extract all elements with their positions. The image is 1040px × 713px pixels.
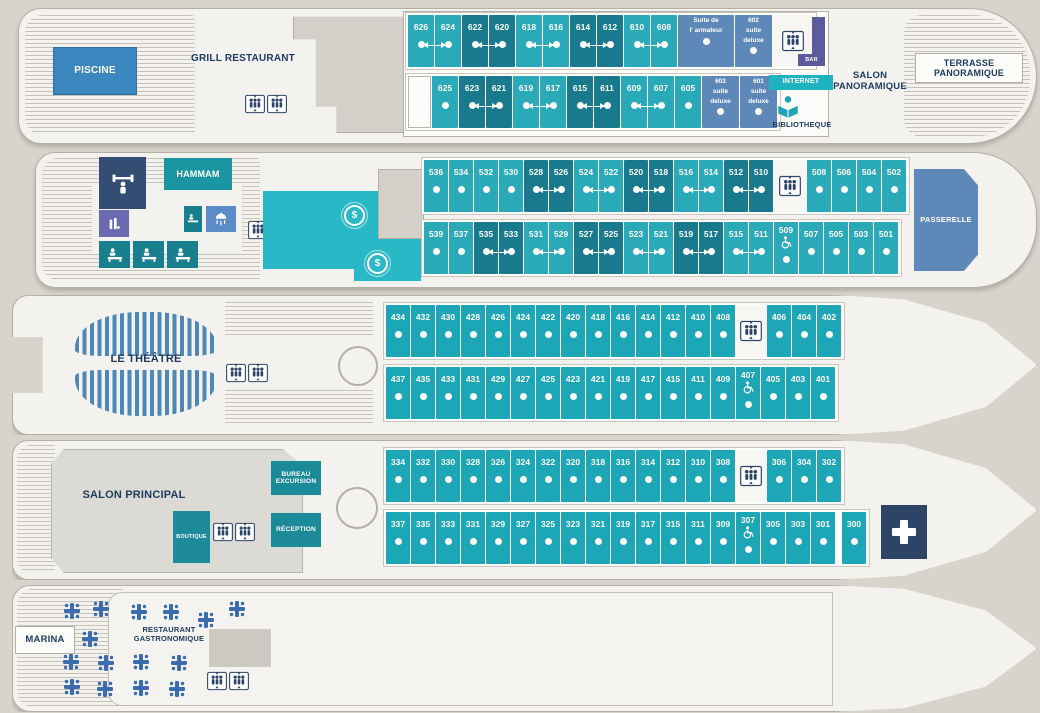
cabin-323[interactable]: 323 — [561, 512, 585, 564]
massage-room-2[interactable] — [133, 241, 164, 268]
salon-principal-label: SALON PRINCIPAL — [69, 489, 199, 502]
elevator-icon — [736, 450, 766, 502]
cabin-437[interactable]: 437 — [386, 367, 410, 419]
cabin-535[interactable]: 535 — [474, 222, 498, 274]
porthole-dot — [685, 102, 692, 109]
bibliotheque-label: BIBLIOTHEQUE — [747, 121, 857, 130]
cabin-409[interactable]: 409 — [711, 367, 735, 419]
pool-area[interactable]: PISCINE — [53, 47, 137, 95]
porthole-dot — [458, 248, 465, 255]
cabin-415[interactable]: 415 — [661, 367, 685, 419]
funnel-circle — [336, 487, 378, 529]
cabin-403[interactable]: 403 — [786, 367, 810, 419]
connecting-cabins-arrow — [637, 45, 664, 46]
cabin-405[interactable]: 405 — [761, 367, 785, 419]
cabin-327[interactable]: 327 — [511, 512, 535, 564]
elevator-icon — [248, 362, 268, 384]
cabin-622[interactable]: 622 — [462, 15, 488, 67]
deck-2: MARINA RESTAURANT GASTRONOMIQUE — [12, 585, 1037, 712]
porthole-dot — [670, 331, 677, 338]
passerelle-bridge[interactable]: PASSERELLE — [914, 169, 978, 271]
elevator-icon — [235, 521, 255, 543]
cabin-526[interactable]: 526 — [549, 160, 573, 212]
bureau-excursion-area[interactable]: BUREAU EXCURSION — [271, 461, 321, 495]
cabin-312[interactable]: 312 — [661, 450, 685, 502]
porthole-dot — [458, 186, 465, 193]
porthole-dot — [750, 47, 757, 54]
connecting-cabins-arrow — [583, 45, 610, 46]
porthole-dot — [545, 331, 552, 338]
gap — [836, 512, 841, 564]
cabin-suite-603[interactable]: 603suitedeluxe — [702, 76, 739, 128]
cabin-424[interactable]: 424 — [511, 305, 535, 357]
bibliotheque-icon — [775, 95, 801, 119]
massage-icon — [186, 213, 200, 225]
deck-6: PISCINE GRILL RESTAURANT 626624622620618… — [18, 8, 1037, 144]
restaurant-table-icon — [62, 677, 82, 697]
cabin-414[interactable]: 414 — [636, 305, 660, 357]
cabin-423[interactable]: 423 — [561, 367, 585, 419]
restaurant-table-icon — [196, 610, 216, 630]
cabin-426[interactable]: 426 — [486, 305, 510, 357]
porthole-dot — [826, 331, 833, 338]
cabin-330[interactable]: 330 — [436, 450, 460, 502]
cabin-406[interactable]: 406 — [767, 305, 791, 357]
cabin-308[interactable]: 308 — [711, 450, 735, 502]
porthole-dot — [442, 102, 449, 109]
porthole-dot — [820, 393, 827, 400]
deck4-open-deck-bottom — [225, 390, 373, 426]
cabin-503[interactable]: 503 — [849, 222, 873, 274]
porthole-dot — [545, 393, 552, 400]
porthole-dot — [841, 186, 848, 193]
porthole-dot — [495, 538, 502, 545]
cabin-328[interactable]: 328 — [461, 450, 485, 502]
bar-area[interactable] — [812, 17, 825, 54]
cabin-504[interactable]: 504 — [857, 160, 881, 212]
cabin-314[interactable]: 314 — [636, 450, 660, 502]
cabin-412[interactable]: 412 — [661, 305, 685, 357]
cabin-517[interactable]: 517 — [699, 222, 723, 274]
porthole-dot — [620, 538, 627, 545]
restaurant-table-icon — [161, 602, 181, 622]
cabin-suite-suite-de[interactable]: Suite del' armateur — [678, 15, 734, 67]
porthole-dot — [520, 476, 527, 483]
porthole-dot — [570, 393, 577, 400]
funnel-circle — [338, 346, 378, 386]
cabin-435[interactable]: 435 — [411, 367, 435, 419]
deck6-structure — [293, 13, 407, 133]
cabin-501[interactable]: 501 — [874, 222, 898, 274]
cabin-614[interactable]: 614 — [570, 15, 596, 67]
cabin-302[interactable]: 302 — [817, 450, 841, 502]
massage-room-3[interactable] — [167, 241, 198, 268]
passerelle-label: PASSERELLE — [920, 216, 971, 225]
cabin-512[interactable]: 512 — [724, 160, 748, 212]
cabin-325[interactable]: 325 — [536, 512, 560, 564]
connecting-cabins-arrow — [472, 106, 499, 107]
cabin-607[interactable]: 607 — [648, 76, 674, 128]
porthole-dot — [670, 476, 677, 483]
cabin-525[interactable]: 525 — [599, 222, 623, 274]
cabin-303[interactable]: 303 — [786, 512, 810, 564]
porthole-dot — [395, 393, 402, 400]
restaurant-table-icon — [227, 599, 247, 619]
restaurant-table-icon — [95, 679, 115, 699]
restaurant-table-icon — [167, 679, 187, 699]
restaurant-table-icon — [91, 599, 111, 619]
cabin-510[interactable]: 510 — [749, 160, 773, 212]
porthole-dot — [470, 331, 477, 338]
elevator-icon — [213, 521, 233, 543]
restaurant-table-icon — [80, 629, 100, 649]
porthole-dot — [703, 38, 710, 45]
fitness-area[interactable] — [99, 157, 146, 209]
cabin-520[interactable]: 520 — [624, 160, 648, 212]
medical-center[interactable] — [881, 505, 927, 559]
spa-products-icon — [107, 216, 121, 232]
deck3-cabin-row-top: 3343323303283263243223203183163143123103… — [383, 447, 845, 505]
deck3-stern-open-deck — [17, 445, 55, 573]
porthole-dot — [645, 476, 652, 483]
grill-restaurant-label: GRILL RESTAURANT — [187, 53, 299, 65]
cabin-418[interactable]: 418 — [586, 305, 610, 357]
wheelchair-accessible-icon — [780, 236, 793, 254]
cabin-332[interactable]: 332 — [411, 450, 435, 502]
cabin-509[interactable]: 509 — [774, 222, 798, 274]
cabin-316[interactable]: 316 — [611, 450, 635, 502]
cabin-304[interactable]: 304 — [792, 450, 816, 502]
cabin-516[interactable]: 516 — [674, 160, 698, 212]
cabin-411[interactable]: 411 — [686, 367, 710, 419]
cabin-319[interactable]: 319 — [611, 512, 635, 564]
porthole-dot — [645, 393, 652, 400]
porthole-dot — [745, 546, 752, 553]
porthole-dot — [395, 331, 402, 338]
cabin-528[interactable]: 528 — [524, 160, 548, 212]
cabin-511[interactable]: 511 — [749, 222, 773, 274]
deck5-structure — [378, 169, 424, 239]
cabin-428[interactable]: 428 — [461, 305, 485, 357]
terrasse-label: TERRASSE PANORAMIQUE — [916, 58, 1022, 79]
porthole-dot — [595, 331, 602, 338]
reception-area[interactable]: RÉCEPTION — [271, 513, 321, 547]
cabin-529[interactable]: 529 — [549, 222, 573, 274]
wheelchair-accessible-icon — [742, 526, 755, 544]
porthole-dot — [595, 476, 602, 483]
porthole-dot — [595, 393, 602, 400]
cabin-315[interactable]: 315 — [661, 512, 685, 564]
porthole-dot — [695, 538, 702, 545]
porthole-dot — [445, 393, 452, 400]
cabin-515[interactable]: 515 — [724, 222, 748, 274]
porthole-dot — [395, 476, 402, 483]
restaurant-table-icon — [129, 602, 149, 622]
porthole-dot — [858, 248, 865, 255]
porthole-dot — [720, 476, 727, 483]
connecting-cabins-arrow — [586, 190, 611, 191]
cabin-533[interactable]: 533 — [499, 222, 523, 274]
cabin-310[interactable]: 310 — [686, 450, 710, 502]
porthole-dot — [470, 393, 477, 400]
cabin-326[interactable]: 326 — [486, 450, 510, 502]
deck4-cabin-row-bottom: 4374354334314294274254234214194174154114… — [383, 364, 839, 422]
cabin-311[interactable]: 311 — [686, 512, 710, 564]
porthole-dot — [520, 538, 527, 545]
cabin-505[interactable]: 505 — [824, 222, 848, 274]
porthole-dot — [520, 393, 527, 400]
spa-treatment-area[interactable] — [99, 210, 129, 237]
dollar-icon: $ — [367, 253, 388, 274]
cabin-404[interactable]: 404 — [792, 305, 816, 357]
wheelchair-accessible-icon — [742, 381, 755, 399]
deck4-open-deck-top — [225, 302, 373, 338]
restaurant-table-icon — [61, 652, 81, 672]
shower-icon — [212, 212, 230, 227]
restaurant-table-icon — [169, 653, 189, 673]
cabin-626[interactable]: 626 — [408, 15, 434, 67]
porthole-dot — [883, 248, 890, 255]
cabin-539[interactable]: 539 — [424, 222, 448, 274]
porthole-dot — [445, 331, 452, 338]
cabin-508[interactable]: 508 — [807, 160, 831, 212]
cabin-320[interactable]: 320 — [561, 450, 585, 502]
theatre-seats-upper — [75, 312, 217, 356]
cabin-625[interactable]: 625 — [432, 76, 458, 128]
cabin-610[interactable]: 610 — [624, 15, 650, 67]
cabin-300[interactable]: 300 — [842, 512, 866, 564]
porthole-dot — [433, 248, 440, 255]
massage-room-1[interactable] — [99, 241, 130, 268]
connecting-cabins-arrow — [580, 106, 607, 107]
cabin-422[interactable]: 422 — [536, 305, 560, 357]
porthole-dot — [695, 331, 702, 338]
porthole-dot — [420, 476, 427, 483]
dollar-icon: $ — [344, 205, 365, 226]
cabin-321[interactable]: 321 — [586, 512, 610, 564]
connecting-cabins-arrow — [686, 252, 711, 253]
elevator-group — [213, 521, 255, 543]
porthole-dot — [717, 108, 724, 115]
cabin-518[interactable]: 518 — [649, 160, 673, 212]
cabin-502[interactable]: 502 — [882, 160, 906, 212]
cabin-609[interactable]: 609 — [621, 76, 647, 128]
cabin-507[interactable]: 507 — [799, 222, 823, 274]
cabin-532[interactable]: 532 — [474, 160, 498, 212]
porthole-dot — [495, 476, 502, 483]
porthole-dot — [670, 538, 677, 545]
cabin-624[interactable]: 624 — [435, 15, 461, 67]
deck-3: SALON PRINCIPAL BUREAU EXCURSION BOUTIQU… — [12, 440, 1037, 580]
elevator-group — [245, 93, 287, 115]
cabin-420[interactable]: 420 — [561, 305, 585, 357]
elevator-icon — [267, 93, 287, 115]
cabin-536[interactable]: 536 — [424, 160, 448, 212]
cabin-318[interactable]: 318 — [586, 450, 610, 502]
connecting-cabins-arrow — [529, 45, 556, 46]
porthole-dot — [783, 256, 790, 263]
cabin-421[interactable]: 421 — [586, 367, 610, 419]
shower-room[interactable] — [206, 206, 236, 232]
salon-panoramique-label: SALON PANORAMIQUE — [825, 71, 915, 93]
cabin-335[interactable]: 335 — [411, 512, 435, 564]
porthole-dot — [545, 538, 552, 545]
porthole-dot — [670, 393, 677, 400]
porthole-dot — [395, 538, 402, 545]
cabin-430[interactable]: 430 — [436, 305, 460, 357]
cabin-425[interactable]: 425 — [536, 367, 560, 419]
cabin-620[interactable]: 620 — [489, 15, 515, 67]
deck-4: LE THÉÂTRE 43443243042842642442242041841… — [12, 295, 1037, 435]
massage-room-small[interactable] — [184, 206, 202, 232]
cabin-524[interactable]: 524 — [574, 160, 598, 212]
deck5-cabin-row-bottom: 5395375355335315295275255235215195175155… — [421, 219, 902, 277]
cabin-621[interactable]: 621 — [486, 76, 512, 128]
cabin-434[interactable]: 434 — [386, 305, 410, 357]
cabin-417[interactable]: 417 — [636, 367, 660, 419]
porthole-dot — [545, 476, 552, 483]
cabin-427[interactable]: 427 — [511, 367, 535, 419]
hammam-area[interactable]: HAMMAM — [164, 158, 232, 190]
porthole-dot — [470, 476, 477, 483]
massage-icon — [105, 247, 125, 263]
connecting-cabins-arrow — [536, 252, 561, 253]
cabin-407[interactable]: 407 — [736, 367, 760, 419]
cabin-337[interactable]: 337 — [386, 512, 410, 564]
cabin-527[interactable]: 527 — [574, 222, 598, 274]
boutique-label: BOUTIQUE — [176, 534, 207, 540]
porthole-dot — [508, 186, 515, 193]
cabin-530[interactable]: 530 — [499, 160, 523, 212]
cabin-401[interactable]: 401 — [811, 367, 835, 419]
ship-deck-plan: PISCINE GRILL RESTAURANT 626624622620618… — [0, 0, 1040, 713]
cabin-506[interactable]: 506 — [832, 160, 856, 212]
connecting-cabins-arrow — [736, 190, 761, 191]
cabin-616[interactable]: 616 — [543, 15, 569, 67]
cabin-617[interactable]: 617 — [540, 76, 566, 128]
porthole-dot — [645, 331, 652, 338]
porthole-dot — [755, 108, 762, 115]
cabin-307[interactable]: 307 — [736, 512, 760, 564]
deck5-cabin-row-top: 5365345325305285265245225205185165145125… — [421, 157, 910, 215]
cabin-531[interactable]: 531 — [524, 222, 548, 274]
stairs-structure — [408, 76, 431, 128]
porthole-dot — [483, 186, 490, 193]
porthole-dot — [495, 331, 502, 338]
cabin-317[interactable]: 317 — [636, 512, 660, 564]
porthole-dot — [833, 248, 840, 255]
porthole-dot — [570, 538, 577, 545]
cabin-514[interactable]: 514 — [699, 160, 723, 212]
theatre-seats-lower — [75, 370, 217, 416]
porthole-dot — [470, 538, 477, 545]
connecting-cabins-arrow — [636, 190, 661, 191]
cabin-322[interactable]: 322 — [536, 450, 560, 502]
cabin-623[interactable]: 623 — [459, 76, 485, 128]
bar-label: BAR — [805, 57, 818, 63]
cabin-suite-602[interactable]: 602suitedeluxe — [735, 15, 772, 67]
cabin-608[interactable]: 608 — [651, 15, 677, 67]
internet-label: INTERNET — [783, 78, 820, 86]
cabin-329[interactable]: 329 — [486, 512, 510, 564]
cabin-305[interactable]: 305 — [761, 512, 785, 564]
connecting-cabins-arrow — [421, 45, 448, 46]
porthole-dot — [420, 538, 427, 545]
cabin-429[interactable]: 429 — [486, 367, 510, 419]
porthole-dot — [570, 331, 577, 338]
cabin-431[interactable]: 431 — [461, 367, 485, 419]
cabin-408[interactable]: 408 — [711, 305, 735, 357]
deck-5: HAMMAM $ $ 536534532530528526524 — [35, 152, 1037, 288]
cabin-410[interactable]: 410 — [686, 305, 710, 357]
connecting-cabins-arrow — [636, 252, 661, 253]
restaurant-table-icon — [96, 653, 116, 673]
cabin-521[interactable]: 521 — [649, 222, 673, 274]
pool-label: PISCINE — [74, 65, 115, 77]
porthole-dot — [851, 538, 858, 545]
porthole-dot — [695, 476, 702, 483]
boutique-area[interactable]: BOUTIQUE — [173, 511, 210, 563]
porthole-dot — [720, 331, 727, 338]
cabin-519[interactable]: 519 — [674, 222, 698, 274]
porthole-dot — [808, 248, 815, 255]
cabin-324[interactable]: 324 — [511, 450, 535, 502]
cabin-309[interactable]: 309 — [711, 512, 735, 564]
cabin-333[interactable]: 333 — [436, 512, 460, 564]
cabin-301[interactable]: 301 — [811, 512, 835, 564]
porthole-dot — [420, 331, 427, 338]
connecting-cabins-arrow — [486, 252, 511, 253]
porthole-dot — [620, 393, 627, 400]
cabin-334[interactable]: 334 — [386, 450, 410, 502]
cabin-419[interactable]: 419 — [611, 367, 635, 419]
cabin-432[interactable]: 432 — [411, 305, 435, 357]
cabin-537[interactable]: 537 — [449, 222, 473, 274]
connecting-cabins-arrow — [526, 106, 553, 107]
porthole-dot — [820, 538, 827, 545]
cabin-402[interactable]: 402 — [817, 305, 841, 357]
bar-label-block[interactable]: BAR — [798, 54, 825, 66]
elevator-icon — [245, 93, 265, 115]
cabin-534[interactable]: 534 — [449, 160, 473, 212]
cabin-433[interactable]: 433 — [436, 367, 460, 419]
cabin-615[interactable]: 615 — [567, 76, 593, 128]
porthole-dot — [570, 476, 577, 483]
cabin-618[interactable]: 618 — [516, 15, 542, 67]
porthole-dot — [816, 186, 823, 193]
cabin-416[interactable]: 416 — [611, 305, 635, 357]
cabin-605[interactable]: 605 — [675, 76, 701, 128]
massage-icon — [139, 247, 159, 263]
restaurant-table-icon — [131, 678, 151, 698]
elevator-icon — [774, 160, 806, 212]
porthole-dot — [776, 476, 783, 483]
cabin-619[interactable]: 619 — [513, 76, 539, 128]
cabin-306[interactable]: 306 — [767, 450, 791, 502]
connecting-cabins-arrow — [736, 252, 761, 253]
cabin-612[interactable]: 612 — [597, 15, 623, 67]
cabin-523[interactable]: 523 — [624, 222, 648, 274]
cabin-331[interactable]: 331 — [461, 512, 485, 564]
porthole-dot — [720, 393, 727, 400]
connecting-cabins-arrow — [686, 190, 711, 191]
porthole-dot — [720, 538, 727, 545]
deck4-cabin-row-top: 4344324304284264244224204184164144124104… — [383, 302, 845, 360]
cabin-611[interactable]: 611 — [594, 76, 620, 128]
cabin-522[interactable]: 522 — [599, 160, 623, 212]
bureau-excursion-label: BUREAU EXCURSION — [271, 471, 321, 486]
internet-area[interactable]: INTERNET — [769, 75, 833, 90]
